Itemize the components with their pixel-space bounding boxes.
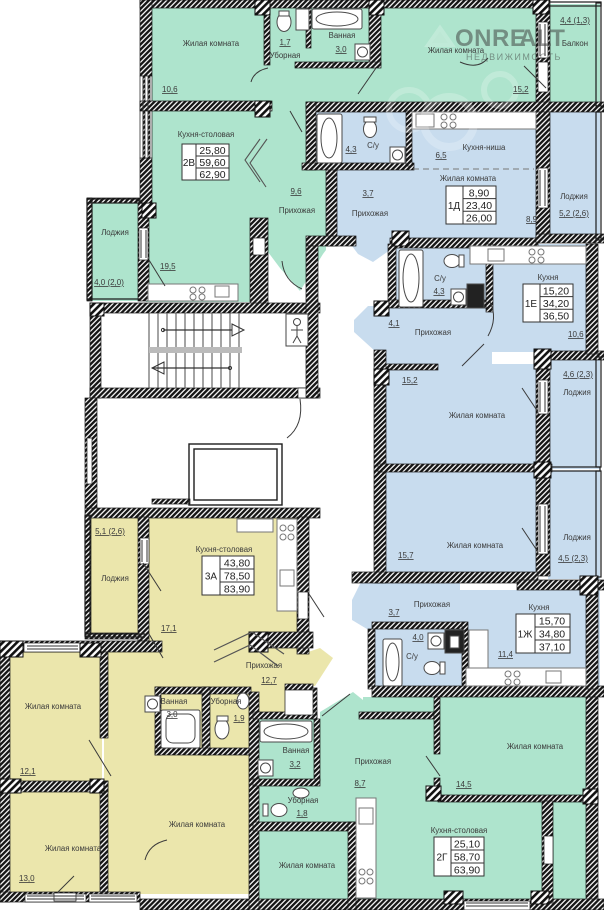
svg-text:25,80: 25,80 xyxy=(199,145,225,157)
svg-text:6,5: 6,5 xyxy=(435,151,447,160)
svg-text:Ванная: Ванная xyxy=(161,697,188,706)
svg-text:3,0: 3,0 xyxy=(166,710,178,719)
svg-text:62,90: 62,90 xyxy=(199,169,225,181)
svg-text:4,1: 4,1 xyxy=(388,319,400,328)
svg-text:Кухня: Кухня xyxy=(538,273,559,282)
svg-text:17,1: 17,1 xyxy=(161,624,177,633)
svg-text:4,3: 4,3 xyxy=(433,287,445,296)
svg-text:5,2 (2,6): 5,2 (2,6) xyxy=(559,209,589,218)
svg-text:25,10: 25,10 xyxy=(454,839,480,851)
svg-text:15,20: 15,20 xyxy=(543,286,569,298)
svg-text:4,4 (1,3): 4,4 (1,3) xyxy=(560,16,590,25)
svg-text:С/у: С/у xyxy=(367,141,379,150)
svg-text:Лоджия: Лоджия xyxy=(101,228,129,237)
svg-text:1Д: 1Д xyxy=(448,201,461,212)
svg-text:4,3: 4,3 xyxy=(345,145,357,154)
svg-text:Прихожая: Прихожая xyxy=(246,661,282,670)
svg-text:Прихожая: Прихожая xyxy=(279,206,315,215)
svg-text:1,7: 1,7 xyxy=(279,38,291,47)
svg-text:Жилая комната: Жилая комната xyxy=(45,844,102,853)
svg-text:11,4: 11,4 xyxy=(498,650,514,659)
svg-text:4,5 (2,3): 4,5 (2,3) xyxy=(558,554,588,563)
svg-text:12,7: 12,7 xyxy=(261,676,277,685)
svg-text:9,6: 9,6 xyxy=(290,187,302,196)
svg-text:Ванная: Ванная xyxy=(329,31,356,40)
svg-text:4,0: 4,0 xyxy=(412,633,424,642)
svg-text:Уборная: Уборная xyxy=(211,697,242,706)
svg-text:8,9: 8,9 xyxy=(526,215,538,224)
svg-text:3,0: 3,0 xyxy=(335,45,347,54)
svg-text:12,1: 12,1 xyxy=(20,767,36,776)
svg-text:83,90: 83,90 xyxy=(224,584,250,596)
svg-text:Прихожая: Прихожая xyxy=(415,328,451,337)
svg-text:78,50: 78,50 xyxy=(224,571,250,583)
svg-text:43,80: 43,80 xyxy=(224,558,250,570)
svg-text:58,70: 58,70 xyxy=(454,852,480,864)
svg-text:Жилая комната: Жилая комната xyxy=(279,861,336,870)
svg-text:4,0 (2,0): 4,0 (2,0) xyxy=(94,278,124,287)
svg-text:Жилая комната: Жилая комната xyxy=(428,46,485,55)
svg-text:ALT: ALT xyxy=(519,25,565,52)
svg-text:Ванная: Ванная xyxy=(283,746,310,755)
svg-text:8,90: 8,90 xyxy=(469,188,490,200)
svg-text:Жилая комната: Жилая комната xyxy=(449,411,506,420)
svg-text:Кухня-столовая: Кухня-столовая xyxy=(196,545,253,554)
svg-text:Прихожая: Прихожая xyxy=(355,757,391,766)
svg-text:3,7: 3,7 xyxy=(362,189,374,198)
svg-text:14,5: 14,5 xyxy=(456,780,472,789)
svg-text:63,90: 63,90 xyxy=(454,865,480,877)
svg-text:1Е: 1Е xyxy=(525,299,538,310)
svg-text:1,8: 1,8 xyxy=(296,809,308,818)
svg-text:Прихожая: Прихожая xyxy=(414,600,450,609)
svg-text:23,40: 23,40 xyxy=(466,200,492,212)
svg-text:34,20: 34,20 xyxy=(543,298,569,310)
svg-text:34,80: 34,80 xyxy=(539,629,565,641)
svg-text:Жилая комната: Жилая комната xyxy=(183,39,240,48)
svg-text:С/у: С/у xyxy=(406,652,418,661)
svg-text:19,5: 19,5 xyxy=(160,262,176,271)
svg-text:Жилая комната: Жилая комната xyxy=(25,702,82,711)
svg-text:1,9: 1,9 xyxy=(233,714,245,723)
svg-text:3,7: 3,7 xyxy=(388,608,400,617)
svg-text:8,7: 8,7 xyxy=(354,779,366,788)
svg-text:Уборная: Уборная xyxy=(288,796,319,805)
svg-text:Уборная: Уборная xyxy=(270,51,301,60)
svg-text:Лоджия: Лоджия xyxy=(560,192,588,201)
svg-text:4,6 (2,3): 4,6 (2,3) xyxy=(563,370,593,379)
svg-text:Лоджия: Лоджия xyxy=(101,574,129,583)
svg-text:С/у: С/у xyxy=(434,274,446,283)
svg-text:15,7: 15,7 xyxy=(398,551,414,560)
svg-text:Кухня-столовая: Кухня-столовая xyxy=(178,130,235,139)
svg-text:Лоджия: Лоджия xyxy=(563,388,591,397)
svg-text:Кухня: Кухня xyxy=(529,603,550,612)
svg-text:Лоджия: Лоджия xyxy=(563,533,591,542)
svg-text:37,10: 37,10 xyxy=(539,642,565,654)
svg-text:Прихожая: Прихожая xyxy=(352,209,388,218)
svg-text:1Ж: 1Ж xyxy=(518,630,534,641)
svg-text:Жилая комната: Жилая комната xyxy=(507,742,564,751)
svg-text:10,6: 10,6 xyxy=(162,85,178,94)
svg-text:5,1 (2,6): 5,1 (2,6) xyxy=(95,527,125,536)
svg-text:10,6: 10,6 xyxy=(568,330,584,339)
svg-text:3,2: 3,2 xyxy=(289,760,301,769)
svg-text:3А: 3А xyxy=(205,572,218,583)
svg-text:2В: 2В xyxy=(183,158,196,169)
svg-text:2Г: 2Г xyxy=(437,853,449,864)
svg-text:15,70: 15,70 xyxy=(539,616,565,628)
svg-text:Кухня-столовая: Кухня-столовая xyxy=(431,826,488,835)
svg-text:15,2: 15,2 xyxy=(513,85,529,94)
svg-text:13,0: 13,0 xyxy=(19,874,35,883)
svg-text:Жилая комната: Жилая комната xyxy=(447,541,504,550)
svg-text:Жилая комната: Жилая комната xyxy=(169,820,226,829)
svg-text:59,60: 59,60 xyxy=(199,157,225,169)
svg-text:Кухня-ниша: Кухня-ниша xyxy=(463,143,506,152)
svg-text:Жилая комната: Жилая комната xyxy=(440,174,497,183)
svg-text:26,00: 26,00 xyxy=(466,213,492,225)
svg-text:36,50: 36,50 xyxy=(543,311,569,323)
svg-text:15,2: 15,2 xyxy=(402,376,418,385)
svg-text:Балкон: Балкон xyxy=(562,39,588,48)
